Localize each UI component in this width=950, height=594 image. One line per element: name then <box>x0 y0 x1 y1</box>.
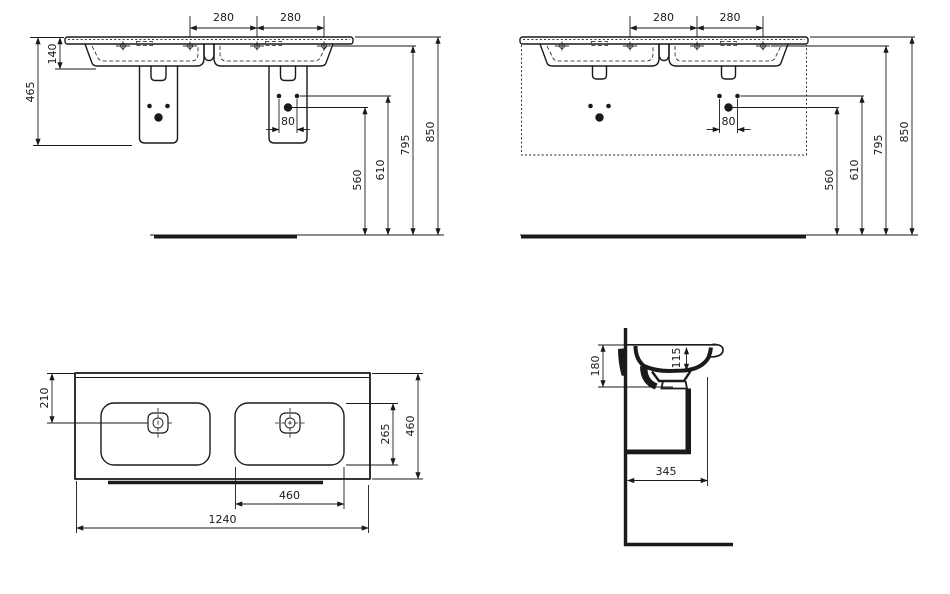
floor-line <box>150 235 444 237</box>
half-pedestal-right <box>269 66 307 143</box>
drain-holes-left <box>588 104 611 122</box>
dim-hole-spacing-2: 80 <box>722 115 736 128</box>
dim-overall-width: 1240 <box>209 513 237 526</box>
dim-drain-from-wall: 345 <box>656 465 677 478</box>
dim-faucet-height: 795 <box>399 135 412 156</box>
half-pedestal-left <box>140 66 178 143</box>
dim-bowl-inner-depth: 115 <box>670 348 683 369</box>
technical-drawing-canvas: 280 280 140 465 80 560 6 <box>0 0 950 594</box>
floor-line-2 <box>520 235 918 237</box>
dim-big-hole-height-2: 560 <box>823 170 836 191</box>
dim-big-hole-height: 560 <box>351 170 364 191</box>
dim-drain-from-back: 210 <box>38 388 51 409</box>
dim-pitch-right: 280 <box>280 11 301 24</box>
dim-pitch-left-2: 280 <box>653 11 674 24</box>
dimensions-plan: 210 265 460 460 1240 <box>38 374 423 534</box>
drawing-svg: 280 280 140 465 80 560 6 <box>0 0 950 594</box>
dim-ceramic-height: 465 <box>24 82 37 103</box>
front-view-pedestal: 280 280 140 465 80 560 6 <box>24 11 444 237</box>
dim-rim-height: 850 <box>424 122 437 143</box>
dim-small-hole-height: 610 <box>374 160 387 181</box>
drain-holes-right <box>717 94 740 112</box>
dim-pitch-right-2: 280 <box>720 11 741 24</box>
faucet-hole-marks-2 <box>555 42 770 51</box>
plan-outline <box>75 373 370 483</box>
dim-small-hole-height-2: 610 <box>848 160 861 181</box>
drain-symbol-left <box>148 408 174 438</box>
plan-view: 210 265 460 460 1240 <box>38 373 423 533</box>
dim-bowl-depth: 265 <box>379 424 392 445</box>
side-view: 180 115 345 <box>589 328 733 546</box>
front-view-furniture: 280 280 80 560 610 795 850 <box>520 11 918 237</box>
washbasin-front-outline-2 <box>520 37 808 79</box>
dim-pitch-left: 280 <box>213 11 234 24</box>
dim-overall-depth: 460 <box>404 416 417 437</box>
dim-bowl-width: 460 <box>279 489 300 502</box>
drain-symbol-right <box>275 408 305 438</box>
furniture-outline <box>522 45 807 155</box>
washbasin-front-outline <box>65 37 353 66</box>
faucet-hole-marks <box>116 42 331 51</box>
dim-rim-height-2: 850 <box>898 122 911 143</box>
dim-apron-height: 180 <box>589 356 602 377</box>
dim-rim-to-bowl: 140 <box>46 44 59 65</box>
dim-faucet-height-2: 795 <box>872 135 885 156</box>
dim-hole-spacing: 80 <box>281 115 295 128</box>
